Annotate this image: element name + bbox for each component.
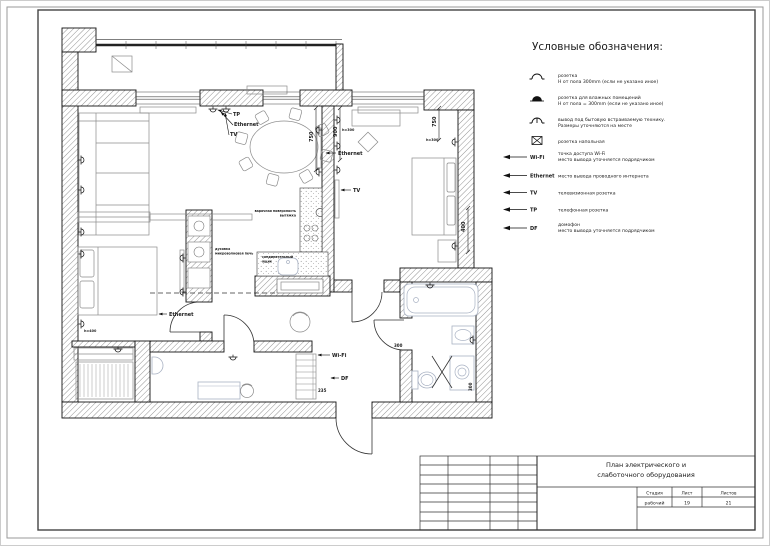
legend-item-text: розетка: [558, 74, 577, 79]
plan-label: h=400: [84, 329, 97, 333]
stage-value: рабочий: [644, 500, 664, 507]
sheet-header: Лист: [682, 491, 693, 497]
legend-item-text: домофон: [558, 222, 580, 228]
drawing-title-line1: План электрического и: [606, 461, 686, 469]
plan-label: Ethernet: [234, 122, 259, 128]
plan-label: Ethernet: [169, 312, 194, 318]
legend-item-text: место вывода уточняется подрядчиком: [558, 158, 655, 163]
bathtub: [404, 284, 478, 316]
plan-label: 900: [333, 126, 339, 137]
legend-tp-label: TP: [530, 208, 537, 214]
plan-label: h=300: [342, 128, 355, 132]
plan-label: 750: [309, 131, 315, 142]
plan-label: 235: [318, 388, 327, 393]
plan-label: 300: [468, 382, 473, 391]
legend-item-text: телевизионная розетка: [558, 192, 616, 197]
legend-item-text: место вывода уточняется подрядчиком: [558, 229, 655, 234]
plan-label: вытяжка: [280, 214, 296, 218]
plan-label: DF: [341, 376, 349, 382]
legend-wifi-label: Wi-Fi: [530, 155, 545, 161]
legend-item-text: точка доступа Wi-Fi: [558, 151, 605, 157]
sheet-value: 19: [684, 501, 690, 507]
plan-label: соединительный: [262, 255, 293, 259]
plan-label: TV: [230, 132, 237, 138]
plan-label: ящик: [262, 260, 273, 264]
legend-title: Условные обозначения:: [532, 41, 663, 53]
sheets-header: Листов: [720, 491, 737, 497]
fridge: [188, 268, 210, 288]
sheets-value: 21: [726, 501, 732, 507]
drawing-sheet: TPEthernetTVEthernetTVEthernetWi-FiDF750…: [0, 0, 770, 546]
plan-label: микроволновая печь: [215, 252, 253, 256]
legend-item-text: Н от пола = 300mm (если не указано иное): [558, 101, 664, 107]
plan-label: 400: [461, 221, 467, 232]
plan-label: варочная поверхность: [255, 209, 296, 213]
plan-label: TP: [233, 112, 240, 118]
legend-item-text: телефонная розетка: [558, 208, 608, 214]
drawing-title-line2: слаботочного оборудования: [597, 471, 695, 479]
plan-label: 300: [394, 343, 403, 348]
plan-label: 750: [432, 116, 438, 127]
legend-ethernet-label: Ethernet: [530, 174, 555, 180]
plan-label: Wi-Fi: [332, 353, 347, 359]
legend-item-text: Н от пола 300mm (если не указано иное): [558, 79, 658, 85]
plan-label: TV: [353, 188, 360, 194]
legend-df-label: DF: [530, 226, 538, 232]
legend-item-text: розетка напольная: [558, 140, 605, 145]
oven: [188, 216, 210, 236]
toilet-tank: [412, 371, 418, 389]
counter-column: [300, 188, 322, 252]
legend-tv-label: TV: [530, 191, 537, 197]
legend-item-text: Размеры уточняются на месте: [558, 123, 632, 129]
stage-header: Стадия: [646, 491, 663, 497]
legend-item-text: розетка для влажных помещений: [558, 94, 641, 101]
plan-label: h=300: [426, 138, 439, 142]
plan-label: Ethernet: [338, 151, 363, 157]
plan-label: духовка: [215, 247, 230, 251]
microwave: [188, 242, 210, 262]
desk: [198, 382, 240, 399]
legend-item-text: место вывода проводного интернета: [558, 175, 649, 180]
legend-item-text: вывод под бытовую встраиваемую технику.: [558, 117, 665, 123]
